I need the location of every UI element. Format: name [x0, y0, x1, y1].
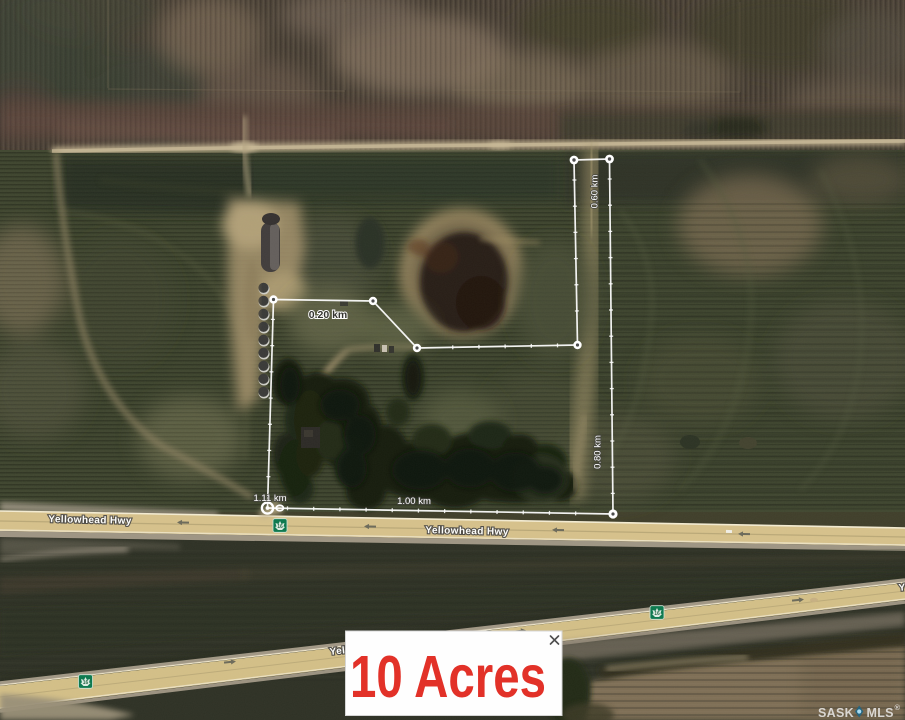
svg-text:16: 16 — [654, 611, 660, 617]
svg-text:Yellowhead Hwy: Yellowhead Hwy — [48, 514, 132, 527]
svg-text:Yellowhead Hwy: Yellowhead Hwy — [425, 525, 509, 538]
svg-text:10 Acres: 10 Acres — [350, 644, 546, 710]
svg-text:0.20 km: 0.20 km — [309, 309, 348, 321]
svg-text:16: 16 — [83, 680, 89, 686]
svg-text:®: ® — [895, 703, 901, 712]
svg-text:1.11 km: 1.11 km — [253, 493, 286, 504]
svg-text:0.60 km: 0.60 km — [590, 175, 601, 209]
svg-text:MLS: MLS — [867, 706, 894, 720]
svg-text:1.00 km: 1.00 km — [397, 496, 431, 507]
svg-text:0.80 km: 0.80 km — [593, 435, 604, 469]
svg-text:16: 16 — [277, 524, 283, 530]
svg-text:SASK: SASK — [818, 706, 854, 720]
